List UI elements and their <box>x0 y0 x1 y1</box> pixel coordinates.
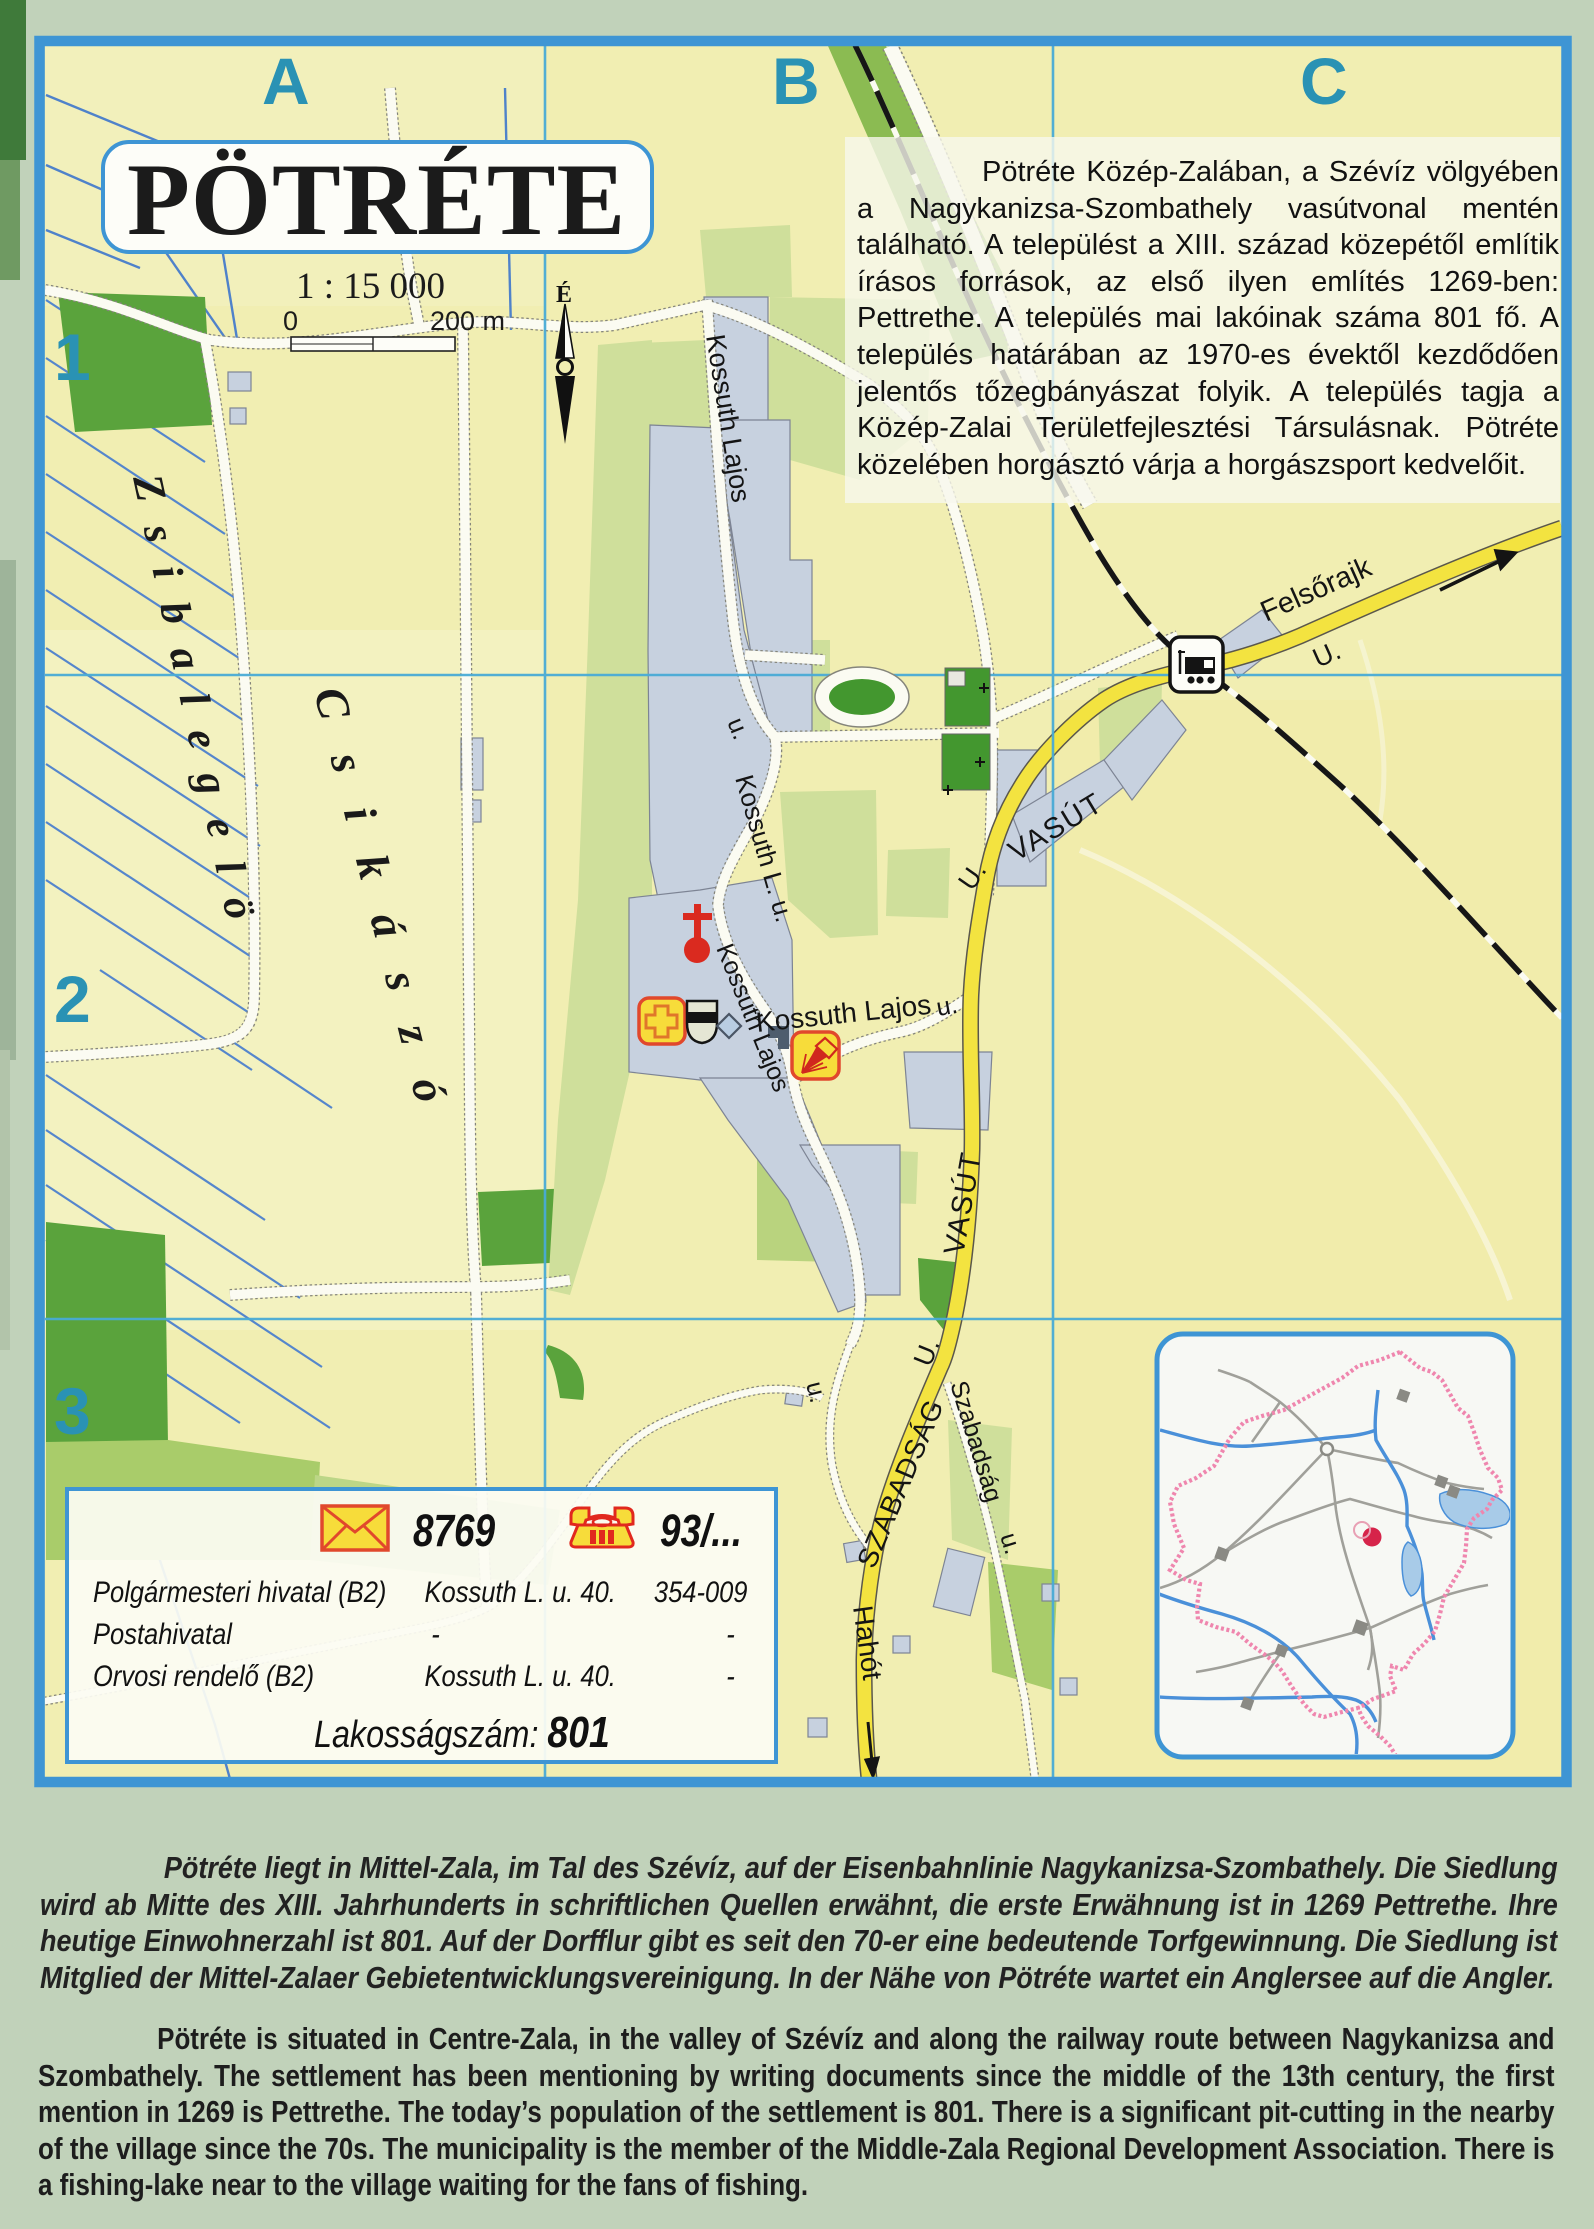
svg-text:200 m: 200 m <box>430 306 505 336</box>
svg-text:1 : 15 000: 1 : 15 000 <box>296 266 445 307</box>
svg-text:PÖTRÉTE: PÖTRÉTE <box>127 143 626 257</box>
svg-text:É: É <box>556 282 572 308</box>
svg-text:2: 2 <box>54 962 91 1036</box>
svg-text:0: 0 <box>283 306 298 336</box>
svg-text:3: 3 <box>54 1374 91 1448</box>
svg-text:C: C <box>1300 44 1348 118</box>
svg-text:A: A <box>262 44 310 118</box>
svg-text:B: B <box>772 44 820 118</box>
svg-text:1: 1 <box>54 320 91 394</box>
